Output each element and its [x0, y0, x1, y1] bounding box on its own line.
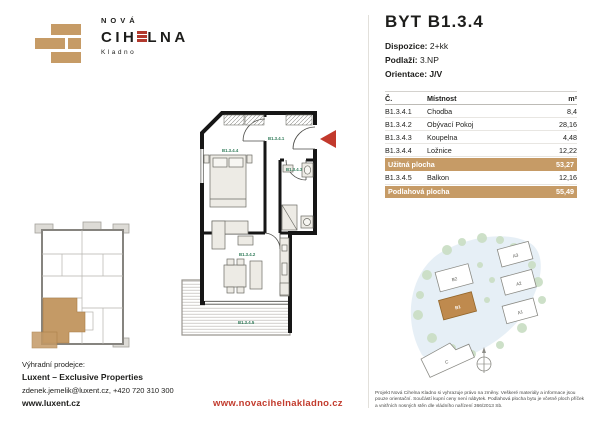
building-overview-plan [25, 212, 140, 365]
table-row: B1.3.4.2 Obývací Pokoj 28,16 [385, 118, 577, 131]
label-bedroom: B1.3.4.4 [222, 148, 239, 153]
bedroom-window [200, 149, 205, 183]
label-living: B1.3.4.2 [239, 252, 256, 257]
table-row: B1.3.4.4 Ložnice 12,22 [385, 144, 577, 157]
kitchen-counter [280, 238, 289, 296]
label-hall: B1.3.4.1 [268, 136, 285, 141]
subtotal-row: Užitná plocha 53,27 [385, 158, 577, 171]
entrance-arrow-icon [320, 130, 336, 148]
table-header: Č. Místnost m² [385, 92, 577, 105]
spec-podlazi: Podlaží: 3.NP [385, 53, 577, 67]
table-row: B1.3.4.3 Koupelna 4,48 [385, 131, 577, 144]
brand-name-top: NOVÁ [101, 16, 189, 25]
table-row: B1.3.4.1 Chodba 8,4 [385, 105, 577, 118]
brand-name-main: CIHLNA [101, 29, 189, 46]
flat-info-panel: BYT B1.3.4 Dispozice: 2+kk Podlaží: 3.NP… [385, 12, 577, 199]
flat-specs: Dispozice: 2+kk Podlaží: 3.NP Orientace:… [385, 39, 577, 81]
spec-orientace: Orientace: J/V [385, 67, 577, 81]
entrance-gap [312, 125, 319, 149]
balcony-window [205, 299, 288, 308]
brand-name-sub: Kladno [101, 49, 189, 56]
floorplan: B1.3.4.1 B1.3.4.3 B1.3.4.4 B1.3.4.2 B1.3… [160, 103, 360, 355]
room-table: Č. Místnost m² B1.3.4.1 Chodba 8,4 B1.3.… [385, 91, 577, 198]
disclaimer-text: Projekt Nová Cihelna Kladno si vyhrazuje… [375, 391, 588, 410]
label-bath: B1.3.4.3 [286, 167, 303, 172]
brick-logo-icon [33, 18, 95, 70]
seller-block: Výhradní prodejce: Luxent – Exclusive Pr… [22, 359, 174, 410]
vertical-divider [368, 15, 369, 408]
total-row: Podlahová plocha 55,49 [385, 186, 577, 199]
spec-dispozice: Dispozice: 2+kk [385, 39, 577, 53]
brand-e-icon [137, 31, 147, 42]
bed [204, 155, 252, 207]
seller-website-link[interactable]: www.luxent.cz [22, 397, 174, 410]
site-plan: B2 B1 A3 A2 A1 C [392, 220, 582, 383]
label-balcony: B1.3.4.5 [238, 320, 255, 325]
dining-set [224, 259, 262, 293]
flat-title: BYT B1.3.4 [385, 12, 577, 32]
brand-logo: NOVÁ CIHLNA Kladno [33, 14, 233, 74]
seller-label: Výhradní prodejce: [22, 359, 174, 371]
seller-name: Luxent – Exclusive Properties [22, 371, 174, 384]
seller-contact[interactable]: zdenek.jemelik@luxent.cz, +420 720 310 3… [22, 384, 174, 397]
project-website-link[interactable]: www.novacihelnakladno.cz [213, 398, 343, 409]
apartment-sheet: NOVÁ CIHLNA Kladno BYT B1.3.4 Dispozice:… [0, 0, 600, 423]
table-row-balcony: B1.3.4.5 Balkon 12,16 [385, 172, 577, 185]
